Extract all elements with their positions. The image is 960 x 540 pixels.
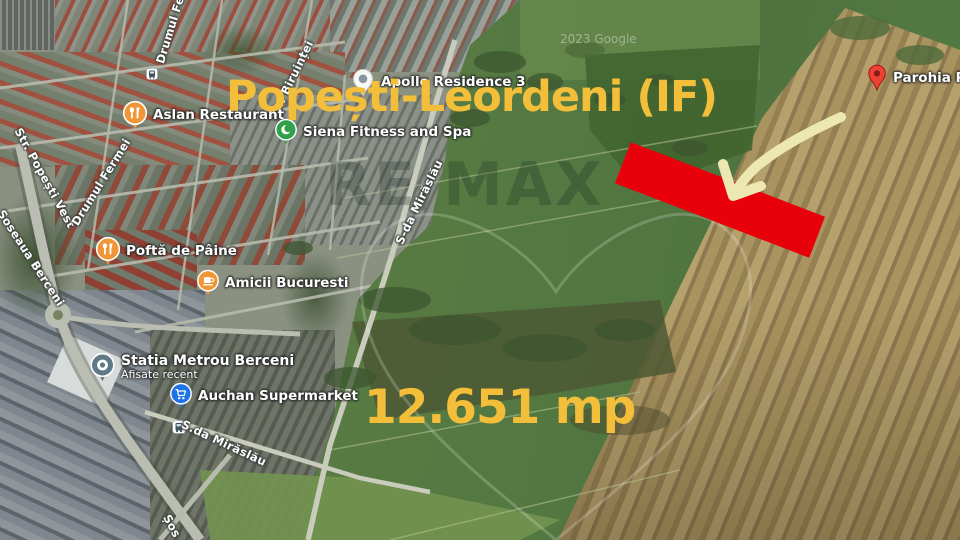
restaurant-pin-icon <box>95 236 121 266</box>
poi-label: Poftă de Pâine <box>126 243 237 259</box>
poi-pofta-de-paine: Poftă de Pâine <box>95 236 237 266</box>
poi-auchan-supermarket: Auchan Supermarket <box>169 382 358 409</box>
poi-label: Amicii Bucuresti <box>225 275 349 291</box>
restaurant-pin-icon <box>122 100 148 130</box>
page-title: Popești-Leordeni (IF) <box>226 72 717 122</box>
metro-pin-icon <box>89 352 116 382</box>
area-label: 12.651 mp <box>364 380 635 435</box>
poi-siena-fitness: Siena Fitness and Spa <box>274 118 471 145</box>
poi-label: Auchan Supermarket <box>198 388 358 404</box>
poi-amicii-bucuresti: Amicii Bucuresti <box>196 269 349 296</box>
poi-label: Parohia Pop <box>893 70 960 86</box>
poi-statia-metrou-berceni: Statia Metrou Berceni Afisate recent <box>89 352 294 382</box>
poi-parohia: Parohia Pop <box>866 62 960 94</box>
cafe-pin-icon <box>196 269 220 296</box>
fitness-pin-icon <box>274 118 298 145</box>
supermarket-pin-icon <box>169 382 193 409</box>
satellite-map-canvas: RE/MAX 2023 Google Drumul Fe Str. Biruin… <box>0 0 960 540</box>
destination-pin-icon <box>866 62 888 94</box>
poi-label: Siena Fitness and Spa <box>303 124 471 140</box>
poi-label: Statia Metrou Berceni <box>121 353 294 369</box>
poi-subtitle: Afisate recent <box>121 369 294 382</box>
